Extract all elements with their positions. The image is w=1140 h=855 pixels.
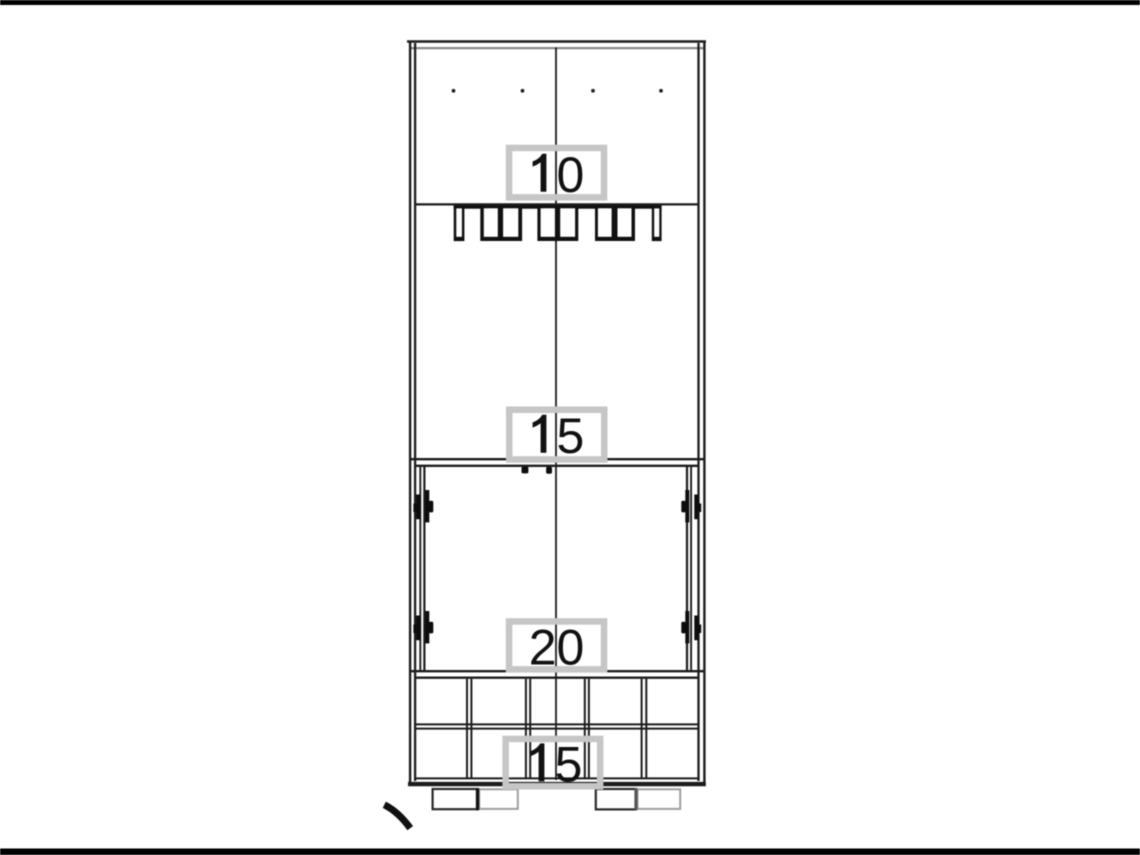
svg-text:5: 5 [555,736,583,792]
svg-text:20: 20 [529,620,585,676]
svg-text:5: 5 [556,408,584,464]
svg-text:0: 0 [556,147,584,203]
